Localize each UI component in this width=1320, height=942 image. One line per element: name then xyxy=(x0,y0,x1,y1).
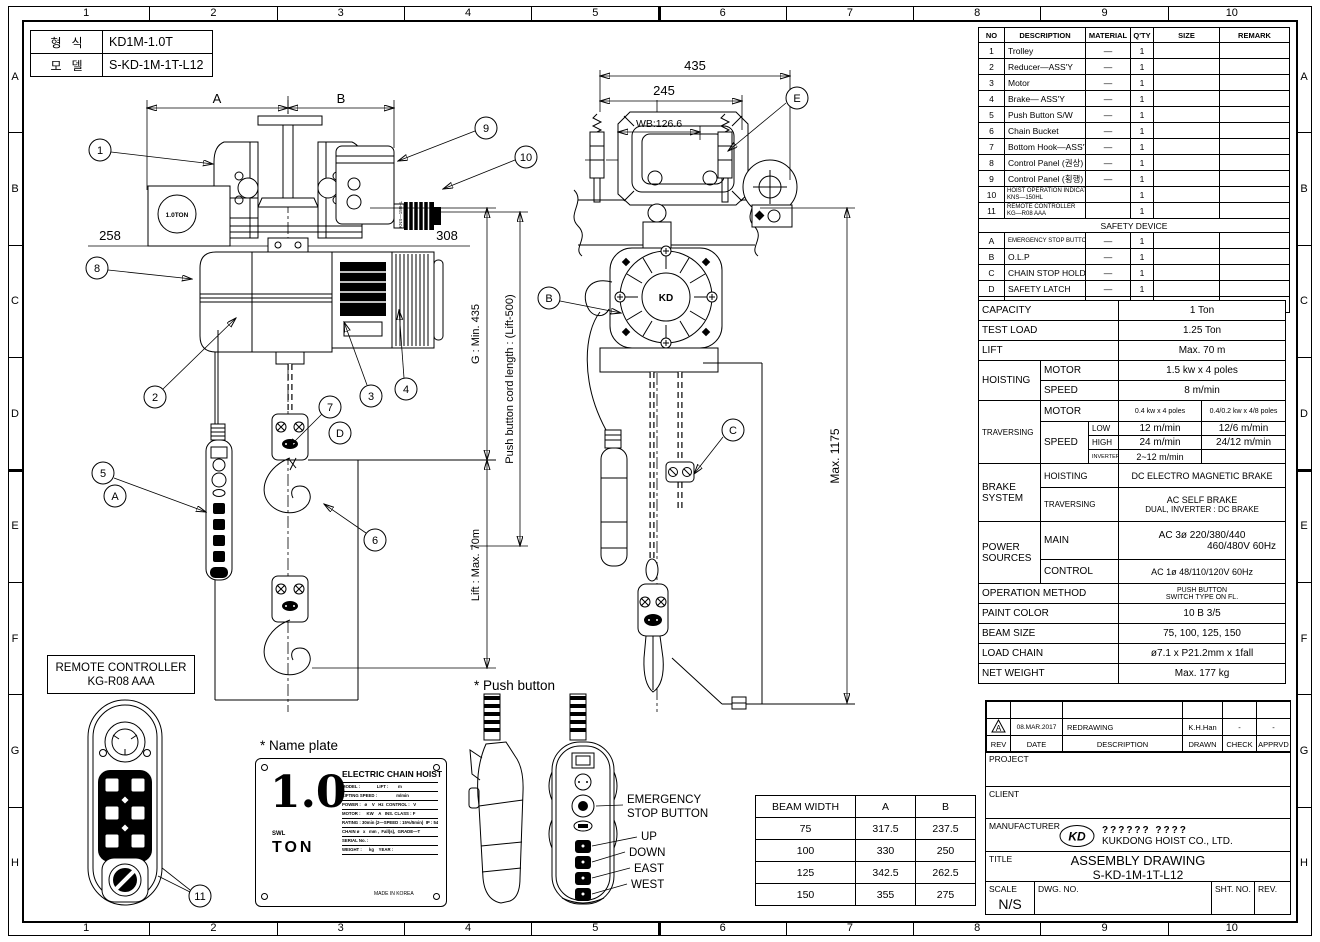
cell-desc: Reducer—ASS'Y xyxy=(1005,59,1086,75)
spec-sublabel: HIGH xyxy=(1089,436,1119,450)
cell-no: 4 xyxy=(979,91,1005,107)
spec-value: 24 m/min xyxy=(1119,436,1202,450)
table-row: 10HOIST OPERATION INDICATOR LIGHTKNS—150… xyxy=(979,187,1290,203)
company-identity: KD ?????? ???? KUKDONG HOIST CO., LTD. xyxy=(1058,824,1233,848)
cell-size xyxy=(1154,107,1220,123)
cell-size xyxy=(1154,265,1220,281)
cell-qty: 1 xyxy=(1131,75,1154,91)
cell-qty: 1 xyxy=(1131,187,1154,203)
table-row: 3Motor—1 xyxy=(979,75,1290,91)
table-row: 75317.5237.5 xyxy=(756,818,976,840)
cell-size xyxy=(1154,43,1220,59)
cell-remark xyxy=(1220,91,1290,107)
cell-size xyxy=(1154,155,1220,171)
cell-size xyxy=(1154,233,1220,249)
spec-label: TRAVERSING xyxy=(979,401,1041,464)
title-block: A 08.MAR.2017 REDRAWING K.H.Han - - REV … xyxy=(985,700,1291,915)
client-section: CLIENT xyxy=(986,786,1290,818)
table-row: BRAKESYSTEMHOISTINGDC ELECTRO MAGNETIC B… xyxy=(979,464,1286,488)
label-line: POWER xyxy=(982,542,1037,553)
callout-4: 4 xyxy=(403,384,409,396)
col-a: A xyxy=(856,796,916,818)
cell-size xyxy=(1154,203,1220,219)
table-row: OPERATION METHODPUSH BUTTONSWITCH TYPE O… xyxy=(979,584,1286,604)
remote-controller-label: REMOTE CONTROLLER KG-R08 AAA xyxy=(47,655,195,694)
spec-label: OPERATION METHOD xyxy=(979,584,1119,604)
spec-value: Max. 177 kg xyxy=(1119,664,1286,684)
parts-list-table: NO DESCRIPTION MATERIAL Q'TY SIZE REMARK… xyxy=(978,27,1290,313)
callout-8: 8 xyxy=(94,263,100,275)
indicator-model-text: KNS—150HL xyxy=(398,200,403,228)
cell-size xyxy=(1154,75,1220,91)
table-row: 6Chain Bucket—1 xyxy=(979,123,1290,139)
spec-value: 8 m/min xyxy=(1119,381,1286,401)
cell-size xyxy=(1154,139,1220,155)
cell-no: 5 xyxy=(979,107,1005,123)
cell-material: — xyxy=(1086,249,1131,265)
table-header-row: NO DESCRIPTION MATERIAL Q'TY SIZE REMARK xyxy=(979,28,1290,43)
cell: 355 xyxy=(856,884,916,906)
motor-end-view: KD xyxy=(610,246,722,348)
plate-row: RATING : 30min (2—SPEED : 15%/5min) IP :… xyxy=(342,819,438,828)
table-row: AEMERGENCY STOP BUTTON S/W—1 xyxy=(979,233,1290,249)
callout-10: 10 xyxy=(520,152,532,164)
label-line: BRAKE xyxy=(982,482,1037,493)
spec-sublabel: SPEED xyxy=(1041,422,1089,464)
cell-no: 10 xyxy=(979,187,1005,203)
callout-D: D xyxy=(336,428,344,440)
push-button-side-view xyxy=(469,694,523,903)
spec-value: 1 Ton xyxy=(1119,301,1286,321)
sht-no-cell: SHT. NO. xyxy=(1211,882,1254,914)
cell-desc: O.L.P xyxy=(1005,249,1086,265)
front-view-dimensions: A B 258 308 G : Min. 435 Lift : Max. 70m… xyxy=(99,91,528,668)
cell-qty: 1 xyxy=(1131,91,1154,107)
spec-sublabel: LOW xyxy=(1089,422,1119,436)
table-row: A 08.MAR.2017 REDRAWING K.H.Han - - xyxy=(987,719,1291,736)
type-value: KD1M-1.0T xyxy=(103,31,213,54)
spec-label: BRAKESYSTEM xyxy=(979,464,1041,522)
spec-label: PAINT COLOR xyxy=(979,604,1119,624)
remote-controller-detail xyxy=(88,700,190,905)
table-row: LOAD CHAINø7.1 x P21.2mm x 1fall xyxy=(979,644,1286,664)
cell-material: — xyxy=(1086,139,1131,155)
table-section-row: SAFETY DEVICE xyxy=(979,219,1290,233)
remote-label-line2: KG-R08 AAA xyxy=(87,675,154,689)
rev-letter: A xyxy=(996,724,1002,733)
dwg-no-cell: DWG. NO. xyxy=(1034,882,1211,914)
table-row: 7Bottom Hook—ASS'Y—1 xyxy=(979,139,1290,155)
table-row: BEAM SIZE75, 100, 125, 150 xyxy=(979,624,1286,644)
table-row: POWERSOURCESMAINAC 3ø 220/380/440460/480… xyxy=(979,522,1286,560)
plate-row: POWER : ø V Hz CONTROL : V xyxy=(342,801,438,810)
spec-sublabel: TRAVERSING xyxy=(1041,488,1119,522)
cell: 75 xyxy=(756,818,856,840)
spec-value xyxy=(1202,450,1286,464)
cell-qty: 1 xyxy=(1131,233,1154,249)
callout-11: 11 xyxy=(194,891,205,903)
cell-remark xyxy=(1220,107,1290,123)
col-apprvd: APPRVD xyxy=(1257,736,1291,753)
spec-sublabel: MAIN xyxy=(1041,522,1119,560)
name-plate-heading: * Name plate xyxy=(260,738,338,753)
kd-logo-icon: KD xyxy=(1058,824,1096,848)
motor-logo-text: KD xyxy=(659,293,673,304)
cell-no: 3 xyxy=(979,75,1005,91)
name-plate: 1.0 SWL TON ELECTRIC CHAIN HOIST MODEL :… xyxy=(255,758,447,907)
cell-desc: Control Panel (횡행) xyxy=(1005,171,1086,187)
table-row: BO.L.P—1 xyxy=(979,249,1290,265)
dim-g: G : Min. 435 xyxy=(470,304,482,364)
cell-size xyxy=(1154,249,1220,265)
spec-value: AC SELF BRAKEDUAL, INVERTER : DC BRAKE xyxy=(1119,488,1286,522)
title-label: TITLE xyxy=(989,854,1012,864)
cell-remark xyxy=(1220,123,1290,139)
cell-qty: 1 xyxy=(1131,139,1154,155)
cell-material: — xyxy=(1086,281,1131,297)
spec-label: TEST LOAD xyxy=(979,321,1119,341)
cell-material: — xyxy=(1086,155,1131,171)
spec-label: LOAD CHAIN xyxy=(979,644,1119,664)
callout-C: C xyxy=(729,425,737,437)
plate-title: ELECTRIC CHAIN HOIST xyxy=(342,769,442,779)
spec-value: 1.5 kw x 4 poles xyxy=(1119,361,1286,381)
value-line: AC SELF BRAKE xyxy=(1122,495,1282,505)
cell-desc: REMOTE CONTROLLERKG—R08 AAA xyxy=(1005,203,1086,219)
cell-qty: 1 xyxy=(1131,249,1154,265)
plate-row: CHAIN ø x mm , Fall(s), GRADE—T xyxy=(342,828,438,837)
scale-value: N/S xyxy=(986,896,1034,912)
spec-sublabel: INVERTER xyxy=(1089,450,1119,464)
spec-label: NET WEIGHT xyxy=(979,664,1119,684)
cell-qty: 1 xyxy=(1131,265,1154,281)
cell-remark xyxy=(1220,187,1290,203)
table-row: 5Push Button S/W—1 xyxy=(979,107,1290,123)
plate-row: SERIAL No. : xyxy=(342,837,438,846)
title-line1: ASSEMBLY DRAWING xyxy=(986,853,1290,868)
cell-no: 6 xyxy=(979,123,1005,139)
callout-7: 7 xyxy=(327,402,333,414)
spec-value: 12 m/min xyxy=(1119,422,1202,436)
model-label: 모 델 xyxy=(31,54,103,77)
desc-line2: KG—R08 AAA xyxy=(1007,211,1085,218)
cell-remark xyxy=(1220,171,1290,187)
col-size: SIZE xyxy=(1154,28,1220,43)
table-row: TEST LOAD1.25 Ton xyxy=(979,321,1286,341)
rev-label: REV. xyxy=(1258,884,1277,894)
cell-remark xyxy=(1220,75,1290,91)
screw-hole-icon xyxy=(261,764,268,771)
table-row: 모 델S-KD-1M-1T-L12 xyxy=(31,54,213,77)
table-row: 형 식KD1M-1.0T xyxy=(31,31,213,54)
limit-switch-left xyxy=(590,114,604,202)
cell-remark xyxy=(1220,203,1290,219)
col-check: CHECK xyxy=(1223,736,1257,753)
cell-no: 11 xyxy=(979,203,1005,219)
cell-desc: Push Button S/W xyxy=(1005,107,1086,123)
table-row: 11REMOTE CONTROLLERKG—R08 AAA1 xyxy=(979,203,1290,219)
type-model-table: 형 식KD1M-1.0T 모 델S-KD-1M-1T-L12 xyxy=(30,30,213,77)
cell-remark xyxy=(1220,265,1290,281)
spec-label: LIFT xyxy=(979,341,1119,361)
cell-remark xyxy=(1220,155,1290,171)
dim-308: 308 xyxy=(436,228,458,243)
up-label: UP xyxy=(641,831,657,843)
cell xyxy=(1063,702,1183,719)
spec-sublabel: HOISTING xyxy=(1041,464,1119,488)
rev-description: REDRAWING xyxy=(1063,719,1183,736)
plate-swl: SWL xyxy=(272,831,285,837)
cell xyxy=(1183,702,1223,719)
desc-line1: HOIST OPERATION INDICATOR LIGHT xyxy=(1007,188,1085,195)
spec-label: BEAM SIZE xyxy=(979,624,1119,644)
beam-width-table: BEAM WIDTHAB 75317.5237.5 100330250 1253… xyxy=(755,795,976,906)
table-row xyxy=(987,702,1291,719)
cell-remark xyxy=(1220,281,1290,297)
callout-3: 3 xyxy=(368,391,374,403)
cell xyxy=(1223,702,1257,719)
callout-9: 9 xyxy=(483,123,489,135)
table-row: 9Control Panel (횡행)—1 xyxy=(979,171,1290,187)
table-row: 1Trolley—1 xyxy=(979,43,1290,59)
kd-logo-text: KD xyxy=(1068,830,1086,844)
push-button-heading: * Push button xyxy=(474,678,555,693)
title-section: TITLE ASSEMBLY DRAWING S-KD-1M-1T-L12 xyxy=(986,851,1290,881)
screw-hole-icon xyxy=(433,893,440,900)
table-row: 4Brake— ASS'Y—1 xyxy=(979,91,1290,107)
col-description: DESCRIPTION xyxy=(1005,28,1086,43)
spec-value: 2~12 m/min xyxy=(1119,450,1202,464)
cell-remark xyxy=(1220,139,1290,155)
cell-material xyxy=(1086,203,1131,219)
scale-cell: SCALE N/S xyxy=(986,882,1034,914)
capacity-badge: 1.0TON xyxy=(166,212,189,219)
rev-marker: A xyxy=(987,719,1011,736)
cell: 237.5 xyxy=(916,818,976,840)
table-row: TRAVERSINGMOTOR0.4 kw x 4 poles0.4/0.2 k… xyxy=(979,401,1286,422)
table-row: 150355275 xyxy=(756,884,976,906)
cell: 250 xyxy=(916,840,976,862)
cell: 317.5 xyxy=(856,818,916,840)
cell-qty: 1 xyxy=(1131,123,1154,139)
cell-material: — xyxy=(1086,91,1131,107)
plate-row: LIFTING SPEED : m/min xyxy=(342,792,438,801)
spec-value: ø7.1 x P21.2mm x 1fall xyxy=(1119,644,1286,664)
company-name-en: KUKDONG HOIST CO., LTD. xyxy=(1102,836,1233,847)
safety-device-title: SAFETY DEVICE xyxy=(979,219,1290,233)
cell-material: — xyxy=(1086,75,1131,91)
rev-drawn: K.H.Han xyxy=(1183,719,1223,736)
hoist-body xyxy=(200,252,332,364)
spec-value: Max. 70 m xyxy=(1119,341,1286,361)
type-label: 형 식 xyxy=(31,31,103,54)
spec-value: 10 B 3/5 xyxy=(1119,604,1286,624)
callout-A: A xyxy=(111,491,119,503)
cell-no: 7 xyxy=(979,139,1005,155)
dim-1175: Max. 1175 xyxy=(828,428,842,483)
desc-line1: REMOTE CONTROLLER xyxy=(1007,204,1085,211)
callout-B: B xyxy=(545,293,552,305)
spec-sublabel: MOTOR xyxy=(1041,401,1119,422)
spec-sublabel: MOTOR xyxy=(1041,361,1119,381)
cell-material: — xyxy=(1086,59,1131,75)
col-b: B xyxy=(916,796,976,818)
table-row: 8Control Panel (권상)—1 xyxy=(979,155,1290,171)
cell-qty: 1 xyxy=(1131,171,1154,187)
rev-date: 08.MAR.2017 xyxy=(1011,719,1063,736)
drawing-title: ASSEMBLY DRAWING S-KD-1M-1T-L12 xyxy=(986,853,1290,882)
estop-label-line1: EMERGENCY xyxy=(627,794,701,806)
dim-245: 245 xyxy=(653,83,675,98)
plate-ton: TON xyxy=(272,839,314,857)
bottom-hook-lowest xyxy=(264,576,310,675)
screw-hole-icon xyxy=(261,893,268,900)
project-section: PROJECT xyxy=(986,751,1290,786)
cell-qty: 1 xyxy=(1131,59,1154,75)
table-row: PAINT COLOR10 B 3/5 xyxy=(979,604,1286,624)
dim-258: 258 xyxy=(99,228,121,243)
remote-label-line1: REMOTE CONTROLLER xyxy=(56,661,187,675)
cell-size xyxy=(1154,171,1220,187)
client-label: CLIENT xyxy=(989,789,1019,799)
company-name-kr: ?????? ???? xyxy=(1102,825,1233,836)
plate-row: WEIGHT : kg YEAR : xyxy=(342,846,438,855)
cell: 262.5 xyxy=(916,862,976,884)
spec-value: 0.4/0.2 kw x 4/8 poles xyxy=(1202,401,1286,422)
cell-desc: Chain Bucket xyxy=(1005,123,1086,139)
table-row: DSAFETY LATCH—1 xyxy=(979,281,1290,297)
specification-table: CAPACITY1 Ton TEST LOAD1.25 Ton LIFTMax.… xyxy=(978,300,1286,684)
model-value: S-KD-1M-1T-L12 xyxy=(103,54,213,77)
cell: 150 xyxy=(756,884,856,906)
revision-table: A 08.MAR.2017 REDRAWING K.H.Han - - REV … xyxy=(986,701,1291,753)
cell xyxy=(1257,702,1291,719)
indicator-light: KNS—150HL xyxy=(394,200,441,230)
cell-size xyxy=(1154,187,1220,203)
cell-desc: Brake— ASS'Y xyxy=(1005,91,1086,107)
table-header-row: REV DATE DESCRIPTION DRAWN CHECK APPRVD xyxy=(987,736,1291,753)
plate-row: MOTOR : KW A INS. CLASS : F xyxy=(342,810,438,819)
bottom-hook-side xyxy=(638,559,668,692)
manufacturer-label: MANUFACTURER xyxy=(989,821,1060,831)
cell-remark xyxy=(1220,233,1290,249)
label-line: SOURCES xyxy=(982,553,1037,564)
plate-spec-rows: MODEL : LIFT : m LIFTING SPEED : m/min P… xyxy=(342,782,438,855)
table-row: CCHAIN STOP HOLDER—1 xyxy=(979,265,1290,281)
cell-desc: HOIST OPERATION INDICATOR LIGHTKNS—150HL xyxy=(1005,187,1086,203)
cell-material: — xyxy=(1086,171,1131,187)
spec-value: 0.4 kw x 4 poles xyxy=(1119,401,1202,422)
spec-value: 12/6 m/min xyxy=(1202,422,1286,436)
col-remark: REMARK xyxy=(1220,28,1290,43)
value-line: 460/480V 60Hz xyxy=(1122,541,1282,552)
trolley-wheel xyxy=(743,160,797,227)
plate-row: MODEL : LIFT : m xyxy=(342,783,438,792)
spec-label: CAPACITY xyxy=(979,301,1119,321)
table-row: 100330250 xyxy=(756,840,976,862)
dim-wb: WB:126.6 xyxy=(636,118,682,130)
dim-cord: Push button cord length : (Lift-500) xyxy=(504,294,516,463)
push-button-front-view: EMERGENCY STOP BUTTON UP DOWN EAST WEST xyxy=(549,694,708,904)
cell-remark xyxy=(1220,43,1290,59)
project-label: PROJECT xyxy=(989,754,1029,764)
cell-desc: Control Panel (권상) xyxy=(1005,155,1086,171)
cell-qty: 1 xyxy=(1131,107,1154,123)
down-label: DOWN xyxy=(629,847,665,859)
cell-no: A xyxy=(979,233,1005,249)
cell-size xyxy=(1154,281,1220,297)
table-row: HOISTINGMOTOR1.5 kw x 4 poles xyxy=(979,361,1286,381)
callout-2: 2 xyxy=(152,392,158,404)
cell-no: C xyxy=(979,265,1005,281)
spec-label: POWERSOURCES xyxy=(979,522,1041,584)
scale-label: SCALE xyxy=(989,884,1017,894)
spec-sublabel: SPEED xyxy=(1041,381,1119,401)
cell-desc: EMERGENCY STOP BUTTON S/W xyxy=(1005,233,1086,249)
cell-size xyxy=(1154,91,1220,107)
table-row: 125342.5262.5 xyxy=(756,862,976,884)
cell: 275 xyxy=(916,884,976,906)
table-row: LIFTMax. 70 m xyxy=(979,341,1286,361)
table-header-row: BEAM WIDTHAB xyxy=(756,796,976,818)
callout-1: 1 xyxy=(97,145,103,157)
cell-remark xyxy=(1220,249,1290,265)
spec-value: AC 3ø 220/380/440460/480V 60Hz xyxy=(1119,522,1286,560)
cell-desc: Motor xyxy=(1005,75,1086,91)
spec-label: HOISTING xyxy=(979,361,1041,401)
value-line: DUAL, INVERTER : DC BRAKE xyxy=(1122,505,1282,514)
cell-desc: SAFETY LATCH xyxy=(1005,281,1086,297)
cell xyxy=(1011,702,1063,719)
cell-desc: Bottom Hook—ASS'Y xyxy=(1005,139,1086,155)
control-panel-traversing xyxy=(336,146,394,224)
company-name: ?????? ???? KUKDONG HOIST CO., LTD. xyxy=(1102,825,1233,847)
value-line: AC 3ø 220/380/440 xyxy=(1122,530,1282,541)
col-no: NO xyxy=(979,28,1005,43)
rev-apprvd: - xyxy=(1257,719,1291,736)
plate-made-in: MADE IN KOREA xyxy=(374,891,414,897)
spec-value: 24/12 m/min xyxy=(1202,436,1286,450)
dwg-no-label: DWG. NO. xyxy=(1038,884,1079,894)
dim-a: A xyxy=(213,91,222,106)
cell-material: — xyxy=(1086,107,1131,123)
plate-capacity: 1.0 xyxy=(270,767,347,818)
cell-remark xyxy=(1220,59,1290,75)
cell: 125 xyxy=(756,862,856,884)
cell-size xyxy=(1154,59,1220,75)
side-view: KD xyxy=(574,58,855,712)
table-row: 2Reducer—ASS'Y—1 xyxy=(979,59,1290,75)
spec-value: 75, 100, 125, 150 xyxy=(1119,624,1286,644)
title-line2: S-KD-1M-1T-L12 xyxy=(986,868,1290,882)
cell-material: — xyxy=(1086,265,1131,281)
dim-lift: Lift : Max. 70m xyxy=(470,529,482,601)
cell-size xyxy=(1154,123,1220,139)
cell xyxy=(987,702,1011,719)
callout-E: E xyxy=(793,93,800,105)
callout-5: 5 xyxy=(100,468,106,480)
callout-6: 6 xyxy=(372,535,378,547)
cell: 342.5 xyxy=(856,862,916,884)
side-envelope xyxy=(672,363,855,709)
cell-material: — xyxy=(1086,43,1131,59)
col-date: DATE xyxy=(1011,736,1063,753)
spec-value: 1.25 Ton xyxy=(1119,321,1286,341)
col-qty: Q'TY xyxy=(1131,28,1154,43)
cell-no: B xyxy=(979,249,1005,265)
cell-desc: Trolley xyxy=(1005,43,1086,59)
col-material: MATERIAL xyxy=(1086,28,1131,43)
